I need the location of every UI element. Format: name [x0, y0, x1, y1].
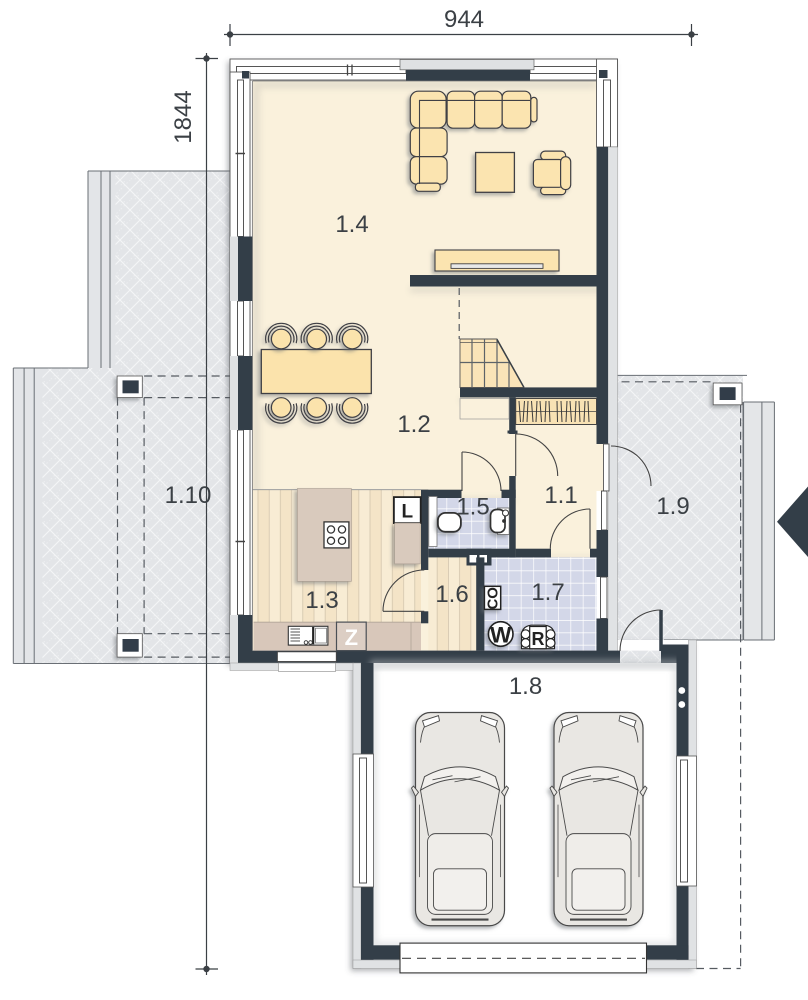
- svg-text:CO: CO: [485, 587, 502, 610]
- svg-text:1.4: 1.4: [335, 211, 368, 238]
- svg-text:1.10: 1.10: [165, 482, 212, 509]
- svg-text:Z: Z: [345, 625, 358, 650]
- svg-text:1.7: 1.7: [531, 579, 564, 606]
- svg-text:944: 944: [444, 6, 484, 33]
- svg-text:1.1: 1.1: [544, 482, 577, 509]
- svg-text:1.3: 1.3: [305, 587, 338, 614]
- svg-text:1.2: 1.2: [397, 411, 430, 438]
- svg-text:L: L: [401, 502, 413, 523]
- svg-text:W: W: [490, 622, 512, 647]
- svg-text:1.5: 1.5: [456, 494, 489, 521]
- svg-text:1844: 1844: [170, 90, 197, 143]
- svg-text:R: R: [532, 629, 545, 649]
- svg-text:1.8: 1.8: [509, 673, 542, 700]
- svg-text:1.9: 1.9: [656, 493, 689, 520]
- svg-text:1.6: 1.6: [435, 581, 468, 608]
